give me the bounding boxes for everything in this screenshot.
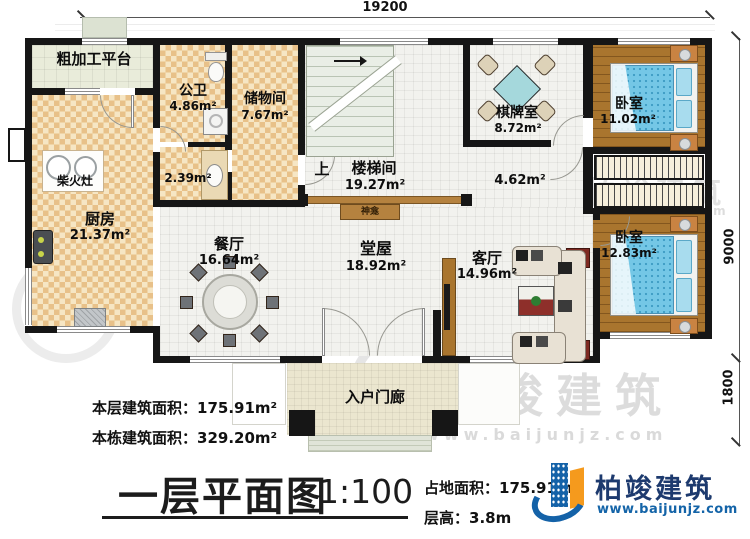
dimension-line-top xyxy=(80,17,710,18)
room-area-label: 14.96m² xyxy=(456,268,518,282)
room-storage-floor xyxy=(232,45,298,200)
building-area-value: 329.20m² xyxy=(197,429,277,447)
wall-segment xyxy=(188,142,232,147)
room-label: 棋牌室 xyxy=(486,106,548,121)
wall-segment xyxy=(463,45,470,147)
room-label: 餐厅 xyxy=(206,237,252,253)
room-label: 储物间 xyxy=(232,92,298,107)
stairs-direction-arrow xyxy=(334,60,360,62)
gas-burner-icon xyxy=(38,251,44,257)
porch-column xyxy=(289,410,315,436)
room-area-label: 4.86m² xyxy=(158,100,228,113)
room-label: 客厅 xyxy=(464,251,510,267)
wall-segment xyxy=(593,248,600,363)
wall-segment xyxy=(298,194,308,206)
dimension-right-main: 9000 xyxy=(723,223,738,271)
plant-icon xyxy=(531,296,541,306)
room-label: 粗加工平台 xyxy=(38,52,150,68)
wall-segment xyxy=(25,88,65,95)
room-label: 堂屋 xyxy=(352,241,400,258)
washing-machine-drum-icon xyxy=(209,114,223,128)
gas-burner-icon xyxy=(38,237,44,243)
room-area-label: 18.92m² xyxy=(344,260,408,274)
window-icon xyxy=(65,88,100,95)
porch-column xyxy=(432,410,458,436)
wall-segment xyxy=(280,356,322,363)
nightstand-icon xyxy=(670,216,698,232)
room-label: 公卫 xyxy=(160,84,226,99)
wall-segment xyxy=(153,200,305,207)
pillow-icon xyxy=(676,240,692,274)
brand-name: 柏竣建筑 xyxy=(595,467,715,506)
room-area-label: 16.64m² xyxy=(196,254,262,268)
scale-label: 1:100 xyxy=(318,472,413,511)
chair-icon xyxy=(223,334,236,347)
title-underline xyxy=(102,516,408,519)
window-icon xyxy=(82,38,127,45)
room-label: 入户门廊 xyxy=(328,390,422,406)
dimension-tick xyxy=(705,10,715,20)
closet-icon xyxy=(594,155,704,180)
room-area-label: 11.02m² xyxy=(598,113,658,126)
wall-segment xyxy=(298,45,305,155)
entrance-door-leaf-icon xyxy=(422,308,425,356)
floor-height-label: 层高： xyxy=(424,509,469,527)
window-icon xyxy=(25,268,32,325)
entrance-door-leaf-icon xyxy=(322,308,325,356)
nightstand-icon xyxy=(670,134,698,151)
wall-segment xyxy=(153,356,190,363)
tv-icon xyxy=(444,284,450,330)
room-area-label: 7.67m² xyxy=(234,109,296,122)
closet-icon xyxy=(594,183,704,208)
toilet-tank-icon xyxy=(205,52,227,61)
room-area-label: 21.37m² xyxy=(66,229,134,243)
chimney xyxy=(8,128,26,162)
wall-segment xyxy=(25,138,32,268)
room-label: 卧室 xyxy=(606,97,652,112)
sofa-pillow-icon xyxy=(558,300,572,312)
porch-steps xyxy=(308,435,432,452)
floor-area-value: 175.91m² xyxy=(197,399,277,417)
window-icon xyxy=(190,356,280,363)
sofa-pillow-icon xyxy=(520,336,532,347)
wall-segment xyxy=(705,38,712,339)
wall-segment xyxy=(135,88,160,95)
exterior-step xyxy=(82,17,127,38)
page-title: 一层平面图 xyxy=(118,464,328,522)
wall-segment xyxy=(583,147,593,214)
brand-logo: 柏竣建筑 www.baijunjz.com xyxy=(533,455,743,535)
dining-table-top-icon xyxy=(213,285,247,319)
window-icon xyxy=(493,38,558,45)
sofa-pillow-icon xyxy=(531,250,543,261)
wall-segment xyxy=(25,38,82,45)
land-area-label: 占地面积： xyxy=(424,479,499,497)
room-label: 楼梯间 xyxy=(340,161,408,177)
room-area-label: 2.39m² xyxy=(163,172,213,185)
window-icon xyxy=(618,38,690,45)
nightstand-icon xyxy=(670,45,698,62)
wall-segment xyxy=(583,38,593,118)
wall-segment xyxy=(153,152,160,200)
nightstand-icon xyxy=(670,318,698,334)
chair-icon xyxy=(266,296,279,309)
wall-segment xyxy=(428,38,493,45)
wall-segment xyxy=(463,140,551,147)
dimension-top: 19200 xyxy=(357,0,413,15)
window-icon xyxy=(340,38,428,45)
floor-height-stat: 层高：3.8m xyxy=(424,507,511,528)
side-pad xyxy=(458,363,520,425)
shrine-label: 神龛 xyxy=(361,207,379,217)
door-leaf-icon xyxy=(131,95,134,128)
dimension-tick xyxy=(731,31,741,41)
chair-icon xyxy=(180,296,193,309)
sofa-pillow-icon xyxy=(558,262,572,274)
wall-segment xyxy=(461,194,472,206)
gas-stove-icon xyxy=(33,230,53,264)
window-icon xyxy=(57,326,130,333)
floor-area-label: 本层建筑面积： xyxy=(92,399,197,417)
stairs-arrow-head xyxy=(360,56,367,66)
watermark-url: www.baijunjz.com xyxy=(424,425,667,444)
dimension-line-right xyxy=(739,38,740,446)
eave-line xyxy=(55,24,715,25)
wall-segment xyxy=(422,356,470,363)
building-area-stat: 本栋建筑面积：329.20m² xyxy=(92,427,277,448)
pillow-icon xyxy=(676,68,692,96)
sink-icon xyxy=(74,308,106,327)
brand-url: www.baijunjz.com xyxy=(597,502,738,517)
room-label: 厨房 xyxy=(76,212,124,228)
room-label: 柴火灶 xyxy=(40,175,110,188)
shrine-beam xyxy=(306,196,463,204)
pillow-icon xyxy=(676,278,692,312)
room-area-label: 8.72m² xyxy=(490,122,546,135)
wall-segment xyxy=(25,326,57,333)
dimension-right-porch: 1800 xyxy=(722,364,737,412)
building-area-label: 本栋建筑面积： xyxy=(92,429,197,447)
room-label: 卧室 xyxy=(606,231,652,246)
floor-area-stat: 本层建筑面积：175.91m² xyxy=(92,397,277,418)
stairs-up-label: 上 xyxy=(312,162,332,178)
wall-segment xyxy=(593,214,600,220)
wall-segment xyxy=(153,45,160,128)
pillow-icon xyxy=(676,100,692,128)
sofa-pillow-icon xyxy=(516,250,528,261)
floor-plan-page: 19200 9000 1800 柏竣建筑 www.baijunjz.com 柏竣… xyxy=(0,0,750,539)
floor-height-value: 3.8m xyxy=(469,509,511,527)
room-area-label: 12.83m² xyxy=(600,247,658,260)
room-area-label: 4.62m² xyxy=(492,174,548,188)
wall-segment xyxy=(433,310,441,363)
room-area-label: 19.27m² xyxy=(344,179,406,193)
wall-segment xyxy=(127,38,340,45)
eave-line xyxy=(55,30,715,31)
toilet-icon xyxy=(208,62,224,82)
shrine-cabinet: 神龛 xyxy=(340,204,400,220)
sofa-pillow-icon xyxy=(536,336,548,347)
wall-segment xyxy=(593,208,712,214)
